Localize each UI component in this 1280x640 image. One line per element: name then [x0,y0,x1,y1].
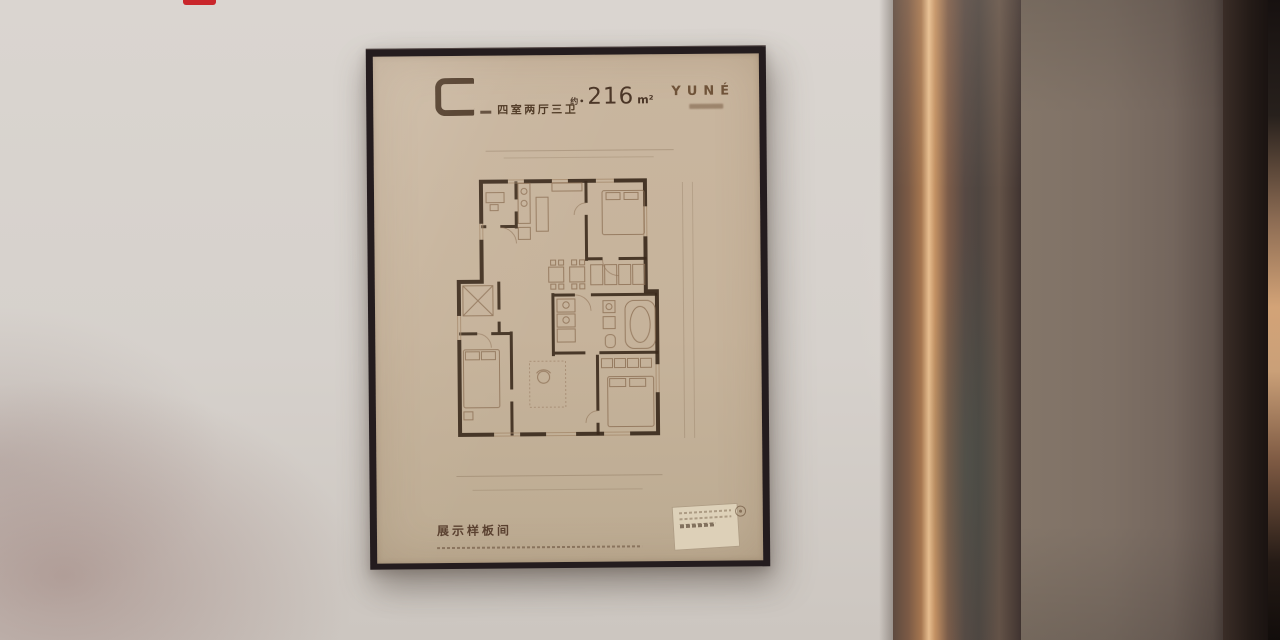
layout-description: 四室两厅三卫 [497,101,578,118]
plan-windows [456,179,659,437]
door-gap-light-sliver [1268,0,1280,640]
dimension-line-top-2 [504,156,654,158]
area-value: 216 [587,85,634,108]
disclaimer-fineprint-line [437,545,642,549]
bronze-metal-trim [893,0,1021,640]
brand-logo-subtext [689,104,723,109]
column-wall-shadow [879,0,893,640]
plan-furniture [462,182,656,428]
dimension-lines-right [682,182,695,438]
floorplan-poster: 四室两厅三卫 约• 216 m² YUNÉ [373,53,763,563]
room-photo-scene: 四室两厅三卫 约• 216 m² YUNÉ [0,0,1280,640]
door-panel [1021,0,1223,640]
dimension-line-top-1 [486,149,674,152]
picture-frame: 四室两厅三卫 约• 216 m² YUNÉ [366,45,771,569]
area-row: 约• 216 m² [570,85,654,109]
stamp-text-line [679,515,731,520]
area-prefix: 约• [570,96,585,107]
dimension-line-bottom-2 [473,488,643,490]
brand-logo: YUNÉ [671,84,735,100]
area-unit: m² [637,93,653,106]
dimension-line-bottom-1 [456,474,662,477]
stamp-text-line-bold [680,522,717,528]
unit-label-dash [480,111,491,114]
plan-interior-walls [458,180,659,436]
bronze-door-frame [893,0,1280,640]
footer-title: 展示样板间 [437,521,512,539]
plan-walls [456,178,660,437]
stamp-text-line [679,509,731,514]
north-arrow-icon [735,505,747,517]
unit-c-glyph [435,78,474,116]
floorplan-drawing [456,178,662,442]
door-edge-dark-strip [1223,0,1268,640]
legend-stamp-box [672,503,741,551]
red-marker [183,0,216,5]
